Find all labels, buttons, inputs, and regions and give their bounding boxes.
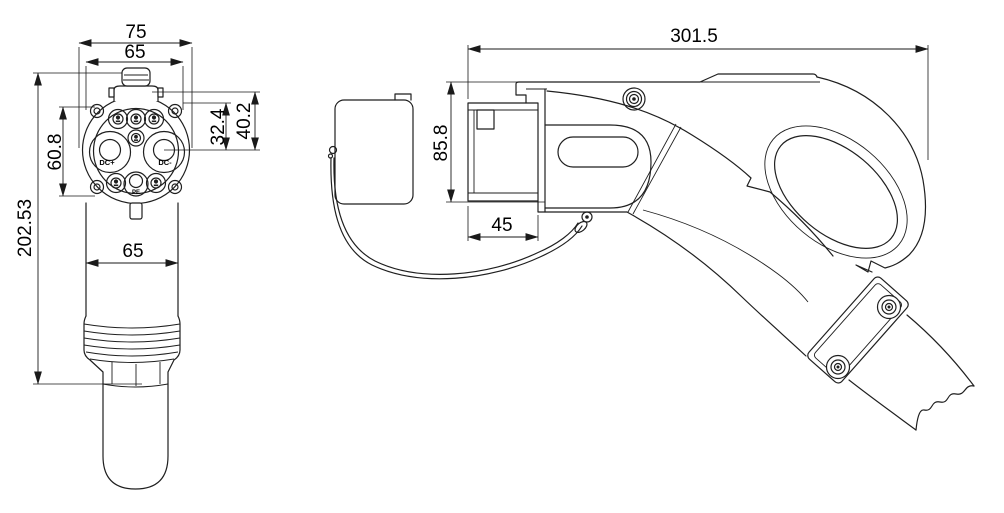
dimension-pin-circle-span: 60.8 [45,107,95,196]
mating-nose [468,103,538,201]
dim-text-outer-pin-height: 40.2 [234,103,255,140]
dimension-upper-pin-height: 32.4 [183,103,231,150]
dimension-body-width: 65 [86,241,178,263]
side-view: 301.5 85.8 45 [329,26,975,430]
front-view: DC+ DC- PE [15,22,260,489]
dust-cap [329,94,414,204]
finger-hole [754,114,918,271]
clamp-screw [827,356,850,379]
clamp-screw [878,296,901,319]
dim-text-upper-pin-height: 32.4 [208,108,229,145]
signal-pin [147,174,166,193]
dc-plus-label: DC+ [99,158,115,167]
dim-text-body-width: 65 [122,241,143,262]
dc-minus-label: DC- [158,158,172,167]
dim-text-nose-depth: 45 [491,215,512,236]
dim-text-overall-length: 301.5 [670,26,718,47]
bottom-key-tab [130,203,142,219]
dim-text-flange-width: 75 [125,22,146,43]
technical-drawing: DC+ DC- PE [0,0,1004,513]
signal-pin [127,110,146,129]
body-screw [623,88,645,110]
dim-text-pin-circle-span: 60.8 [45,134,66,171]
signal-pin [107,174,126,193]
pe-pin: PE [124,172,148,196]
cable-clamp [806,275,911,385]
lanyard-anchor-screw [573,212,592,235]
dim-text-overall-height: 202.53 [15,199,36,257]
dimension-nose-depth: 45 [468,206,538,241]
dc-plus-pin: DC+ [90,132,131,173]
dimension-outer-pin-height: 40.2 [152,92,260,150]
engineering-drawing-page: DC+ DC- PE [0,0,1004,513]
oval-slot [558,137,638,167]
dim-text-face-diameter: 65 [124,42,145,63]
pe-label: PE [132,190,140,196]
signal-pin-center [128,130,144,146]
dim-text-body-height: 85.8 [431,125,452,162]
